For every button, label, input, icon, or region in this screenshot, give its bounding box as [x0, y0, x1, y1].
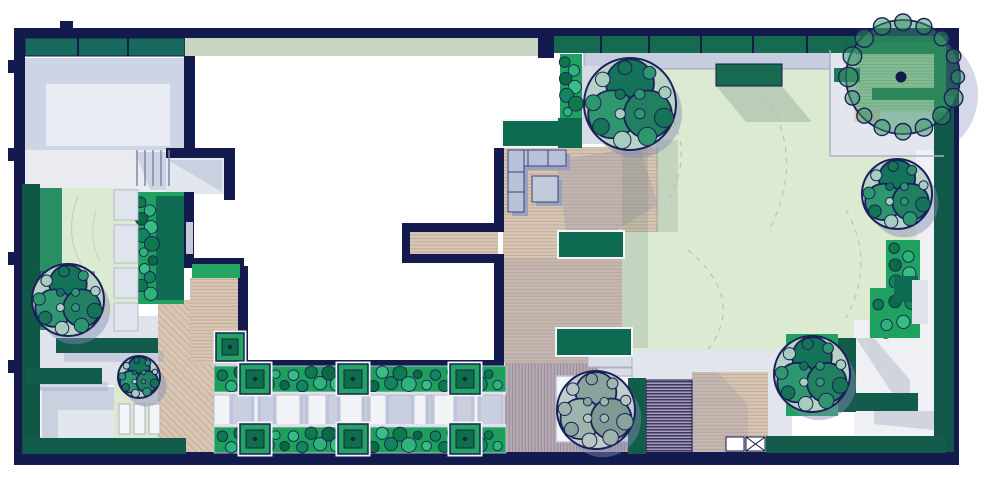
planter-top-1-dot [253, 377, 257, 381]
tree-ne-lawn-bobble [871, 170, 882, 181]
tree-front-left-bobble [39, 311, 52, 324]
walkway-slabs [214, 395, 502, 425]
tree-front-left-inner-bobble [56, 304, 64, 312]
tree-se-lawn-bobble [836, 360, 846, 370]
planter-bottom-3 [448, 422, 483, 457]
shrub [430, 431, 440, 441]
tree-se-lawn-inner-bobble [816, 378, 824, 386]
shrub [881, 319, 892, 330]
shrub [376, 366, 388, 378]
slab [302, 395, 306, 425]
tree-small-left-inner-bobble [141, 370, 146, 375]
plan-layers [0, 0, 990, 478]
shrub [401, 377, 416, 392]
tree-top-center-inner-bobble [615, 89, 625, 99]
shrub [217, 370, 228, 381]
slab [370, 395, 386, 425]
hedge-tr-div1 [600, 36, 602, 53]
planter-top-3-dot [463, 377, 467, 381]
tree-canopy-ne-corner-scallop [915, 119, 932, 136]
tree-top-center-bobble [585, 95, 601, 111]
tree-canopy-ne-corner-scallop [855, 29, 873, 47]
shrub [226, 381, 237, 392]
shrub [297, 380, 308, 391]
hedge-se-horizontal [856, 393, 918, 411]
tree-canopy-ne-corner-scallop [839, 67, 858, 86]
tree-small-left-bobble [150, 379, 159, 388]
tree-top-center-bobble [643, 66, 656, 79]
tree-top-center-bobble [655, 108, 674, 127]
hedge-se-bottom [766, 436, 946, 453]
tree-gray-bottom-bobble [621, 395, 631, 405]
tree-top-center-inner-bobble [635, 89, 645, 99]
shrub [889, 259, 901, 271]
tree-top-center-bobble [593, 118, 610, 135]
tree-gray-bottom-inner-bobble [600, 397, 609, 406]
tree-ne-lawn-bobble [916, 197, 931, 212]
white-planter-1 [119, 404, 130, 434]
slab [434, 395, 454, 425]
raised-bed-deck [556, 328, 632, 356]
tree-top-center-bobble [618, 61, 632, 75]
tree-canopy-ne-corner-scallop [857, 108, 872, 123]
tree-top-center-bobble [638, 127, 656, 145]
shrub [271, 370, 280, 379]
slab [414, 395, 426, 425]
tree-ne-lawn-inner-bobble [901, 198, 909, 206]
slab [214, 395, 230, 425]
white-planter-2 [134, 404, 145, 434]
tree-canopy-ne-corner-scallop [944, 89, 963, 108]
wall-niche-bottom [404, 254, 504, 263]
wall-niche-cap [402, 223, 410, 263]
shrub [148, 256, 158, 266]
tree-se-lawn-bobble [775, 367, 788, 380]
stepping-slabs [114, 190, 138, 331]
wall-porch-right [224, 148, 235, 200]
planter-bottom-1-dot [253, 437, 257, 441]
hedge-tr-div5 [806, 36, 808, 53]
grate-walk [646, 380, 692, 454]
tree-se-lawn-bobble [783, 348, 795, 360]
tree-front-left-bobble [41, 275, 52, 286]
shrub [297, 441, 308, 452]
tree-front-left-bobble [78, 271, 88, 281]
slab [388, 395, 412, 425]
tree-small-left-bobble [145, 360, 151, 366]
bed-strip-corner [192, 264, 240, 278]
fence-gate [186, 222, 193, 254]
shrub [430, 370, 440, 380]
shrub [873, 299, 884, 310]
shrub [217, 431, 228, 442]
slab [114, 268, 138, 298]
wall-nub-left-2 [8, 148, 15, 161]
tree-canopy-ne-corner-scallop [916, 19, 932, 35]
tree-front-left-inner-bobble [56, 288, 64, 296]
tree-gray-bottom-bobble [586, 373, 598, 385]
tree-front-left-bobble [59, 266, 70, 277]
tree-se-lawn-bobble [819, 393, 834, 408]
tree-small-left-bobble [123, 362, 130, 369]
planter-bottom-2 [336, 422, 371, 457]
tree-top-center-bobble [595, 72, 610, 87]
tree-canopy-ne-corner-scallop [933, 107, 951, 125]
slab [260, 395, 274, 425]
hedge-top-left [25, 38, 185, 56]
tree-gray-bottom-bobble [558, 402, 571, 415]
tree-gray-bottom-bobble [582, 433, 597, 448]
hedge-bottom-left [24, 438, 186, 454]
bed-tall-lower [558, 118, 582, 148]
shrub [305, 427, 317, 439]
tree-se-lawn-inner-bobble [800, 362, 808, 370]
shrub [139, 248, 148, 257]
tree-ne-lawn-bobble [903, 212, 917, 226]
shrub [271, 431, 280, 440]
tree-canopy-ne-corner-scallop [934, 31, 949, 46]
bed-bright-left-inner [156, 196, 184, 300]
shrub [484, 370, 493, 379]
tree-top-center-bobble [614, 131, 631, 148]
garden-plan-stage [0, 0, 990, 478]
tree-front-left-inner-bobble [72, 304, 80, 312]
tree-canopy-ne-corner-scallop [895, 14, 912, 31]
tree-se-lawn-bobble [781, 386, 795, 400]
slab [364, 395, 368, 425]
tree-top-center-inner-bobble [635, 109, 645, 119]
tree-small-left-inner-bobble [141, 379, 146, 384]
tree-gray-bottom-bobble [564, 422, 578, 436]
white-planter-3 [149, 404, 160, 434]
shrub [903, 251, 914, 262]
tree-gray-bottom-inner-bobble [583, 397, 592, 406]
slab [114, 190, 138, 220]
wall-nub-left-4 [8, 360, 15, 373]
tree-small-left-inner-bobble [132, 370, 137, 375]
shrub [226, 442, 237, 453]
tree-canopy-ne-corner-scallop [843, 47, 862, 66]
hedge-tr-div2 [648, 36, 650, 53]
sofa-seat-left [508, 150, 524, 212]
tree-gray-bottom-bobble [607, 378, 618, 389]
planter-bottom-2-dot [351, 437, 355, 441]
slab-right-bed [912, 280, 928, 324]
wall-house-right-lower [494, 256, 504, 366]
tree-front-left-bobble [33, 293, 45, 305]
tree-small-left-inner-bobble [132, 379, 137, 384]
slab [232, 395, 252, 425]
shed-light-area [58, 410, 114, 438]
shrub [288, 370, 299, 381]
planter-corner-dot [228, 345, 232, 349]
deck-niche [410, 231, 498, 256]
tree-canopy-ne-corner-scallop [874, 18, 891, 35]
tree-se-lawn-bobble [832, 378, 848, 394]
shrub [422, 380, 432, 390]
shrub [413, 431, 422, 440]
tree-gray-bottom-bobble [617, 414, 633, 430]
shrub [422, 441, 432, 451]
tree-se-lawn-bobble [799, 397, 813, 411]
tree-gray-bottom-inner-bobble [583, 414, 592, 423]
planter-top-2 [336, 362, 371, 397]
wall-house-right-upper [494, 148, 504, 227]
slab [480, 395, 502, 425]
tree-canopy-ne-corner-scallop [845, 91, 859, 105]
planter-top-3 [448, 362, 483, 397]
tree-ne-lawn-bobble [869, 205, 882, 218]
planter-corner [214, 331, 247, 364]
tree-front-left-bobble [74, 318, 88, 332]
shrub [559, 57, 570, 68]
wall-top-divider [538, 34, 554, 58]
tree-ne-lawn-bobble [863, 187, 875, 199]
tree-se-lawn-bobble [802, 338, 813, 349]
wall-niche-top [404, 223, 504, 232]
tree-top-center-inner-bobble [615, 109, 625, 119]
planter-top-2-dot [351, 377, 355, 381]
shrub [413, 370, 422, 379]
wall-porch-top [166, 148, 232, 158]
tree-ne-lawn-inner-bobble [886, 183, 894, 191]
slab [474, 395, 478, 425]
tree-canopy-ne-corner-scallop [874, 120, 890, 136]
shrub [305, 366, 317, 378]
slab [428, 395, 432, 425]
wall-nub-top [60, 21, 73, 29]
wall-nub-left-3 [8, 252, 15, 265]
tree-small-left-bobble [122, 384, 130, 392]
tree-canopy-ne-corner-scallop [946, 49, 960, 63]
shrub [493, 380, 502, 389]
hedge-tr-div4 [752, 36, 754, 53]
tree-canopy-ne-corner-scallop [951, 70, 965, 84]
wall-wing-vertical [184, 56, 195, 154]
wall-porch-nub [184, 140, 193, 149]
tree-front-left-bobble [87, 303, 102, 318]
planter-bottom-3-dot [463, 437, 467, 441]
tree-small-left-bobble [132, 389, 140, 397]
shrub [280, 380, 290, 390]
shrub [144, 287, 157, 300]
hedge-right-band [934, 96, 954, 452]
tree-ne-lawn-inner-bobble [886, 198, 894, 206]
tree-se-lawn-inner-bobble [800, 378, 808, 386]
slab [114, 225, 138, 263]
shrub [401, 438, 416, 453]
shrub [484, 431, 493, 440]
ottoman [532, 176, 558, 202]
tree-small-left-bobble [152, 369, 157, 374]
tree-front-left-bobble [91, 286, 100, 295]
raised-bed-niche [558, 231, 624, 258]
garden-plan-drawing [0, 0, 990, 478]
tree-ne-lawn-inner-bobble [901, 183, 909, 191]
shrub [493, 441, 502, 450]
canopy-trunk-dot [896, 72, 907, 83]
shrub [897, 315, 910, 328]
tree-canopy-ne-corner-scallop [895, 124, 911, 140]
shrub [280, 441, 290, 451]
hedge-lawn-top [716, 64, 782, 86]
tree-se-lawn-inner-bobble [816, 362, 824, 370]
tree-front-left-inner-bobble [72, 288, 80, 296]
tree-top-center-bobble [659, 87, 671, 99]
hedge-bar-2 [26, 368, 102, 384]
tree-front-left-bobble [55, 321, 69, 335]
wall-nub-left-1 [8, 60, 15, 73]
slab [254, 395, 258, 425]
tree-gray-bottom-bobble [603, 430, 619, 446]
shrub [376, 427, 388, 439]
tree-ne-lawn-bobble [885, 215, 898, 228]
tree-se-lawn-bobble [823, 343, 834, 354]
planter-top-1 [238, 362, 273, 397]
slab [114, 303, 138, 331]
tree-ne-lawn-bobble [907, 165, 917, 175]
table-left [726, 437, 744, 451]
slab [276, 395, 300, 425]
tree-small-left-bobble [143, 388, 151, 396]
slab [340, 395, 362, 425]
tree-small-left-bobble [134, 357, 140, 363]
lawn-shadow-deck-edge [622, 148, 648, 348]
hedge-top-left-div2 [127, 38, 129, 56]
slab [308, 395, 326, 425]
tree-small-left-bobble [119, 373, 126, 380]
planter-bottom-1 [238, 422, 273, 457]
front-room-light-area [46, 84, 170, 146]
tree-gray-bottom-inner-bobble [600, 414, 609, 423]
slab [328, 395, 338, 425]
hedge-top-left-div1 [77, 38, 79, 56]
tree-ne-lawn-bobble [888, 161, 898, 171]
hedge-tr-div3 [700, 36, 702, 53]
shrub [563, 108, 572, 117]
slab [456, 395, 472, 425]
sage-strip [185, 38, 538, 56]
shrub [889, 243, 900, 254]
tree-gray-bottom-bobble [567, 383, 579, 395]
tree-ne-lawn-bobble [919, 181, 928, 190]
shrub [288, 431, 299, 442]
